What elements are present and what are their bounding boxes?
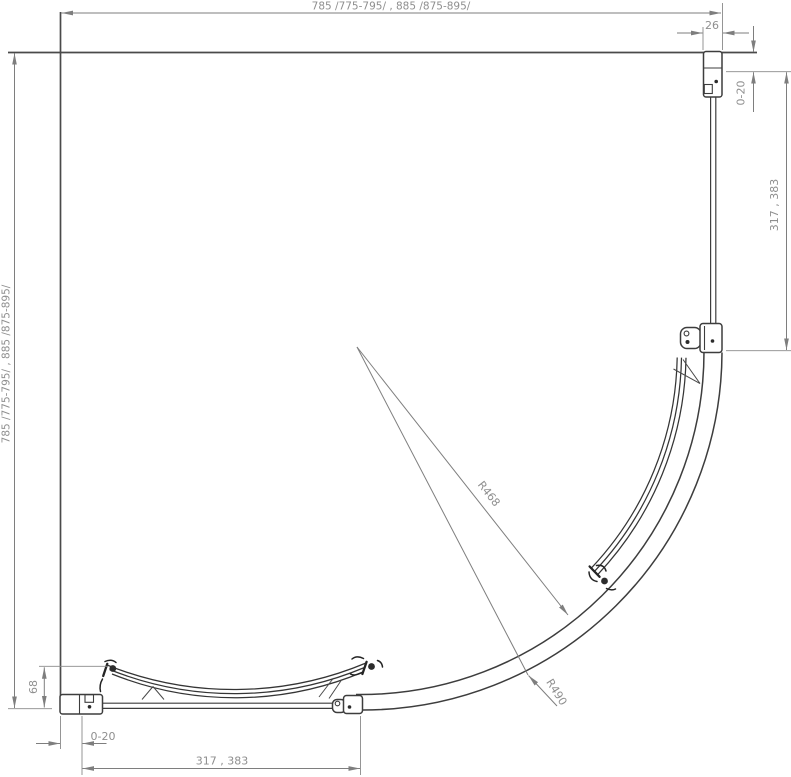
handle-tail — [378, 661, 383, 668]
handle-knob — [601, 578, 608, 585]
bracket-screw — [348, 705, 352, 709]
wall-profile-notch — [704, 85, 712, 94]
bracket-clamp — [681, 328, 702, 349]
technical-drawing-page: R468 R490 — [0, 0, 791, 777]
right-panel-label: 317 , 383 — [768, 179, 781, 231]
dim-top-width: 785 /775-795/ , 885 /875-895/ — [62, 1, 723, 51]
right-door-strut2 — [674, 369, 701, 384]
bottom-corner-bracket — [333, 696, 363, 714]
bracket-body — [700, 324, 722, 353]
shower-enclosure-plan-drawing: R468 R490 — [0, 0, 791, 777]
door-end-cap — [103, 664, 107, 676]
handle-knob — [109, 665, 116, 672]
right-adjustment-label: 0-20 — [735, 81, 748, 106]
radius-inner-label: R468 — [475, 479, 503, 510]
dim-left-height: 785 /775-795/ , 885 /875-895/ — [1, 53, 53, 709]
radius-inner-leader-line — [357, 347, 568, 615]
bottom-sliding-door — [100, 657, 382, 700]
wall-profile-screw — [88, 705, 92, 709]
top-wall-profile — [704, 52, 723, 98]
bottom-panel-label: 317 , 383 — [196, 755, 248, 768]
radius-outer-label: R490 — [543, 677, 569, 708]
bottom-door-right-handle — [351, 657, 383, 675]
track-outer-arc — [362, 353, 722, 711]
wall-profile-body — [60, 695, 103, 715]
bracket-body — [344, 696, 363, 714]
dim-right-adjustment: 0-20 — [726, 26, 791, 112]
wall-profile-screw — [714, 80, 718, 84]
right-door-line3 — [592, 358, 678, 568]
bracket-screw — [711, 339, 715, 343]
dim-profile-width: 26 — [677, 19, 749, 50]
bottom-adjustment-label: 0-20 — [91, 730, 116, 743]
right-door-line1 — [598, 358, 686, 574]
bottom-door-left-handle — [100, 660, 116, 691]
dim-bottom-panel: 317 , 383 — [83, 716, 361, 775]
left-height-label: 785 /775-795/ , 885 /875-895/ — [1, 284, 13, 443]
handle-tail — [607, 589, 616, 590]
wall-clearance-label: 68 — [27, 680, 40, 694]
wall-profile-notch — [85, 695, 94, 703]
track-inner-arc — [356, 351, 704, 695]
handle-prong-top — [352, 657, 364, 659]
radius-leaders: R468 R490 — [357, 347, 570, 708]
wall-lines — [8, 12, 757, 713]
clamp-ring — [335, 701, 340, 706]
clamp-ring — [684, 331, 689, 336]
bottom-wall-profile — [60, 695, 103, 715]
right-sliding-door — [589, 358, 700, 590]
profile-width-label: 26 — [705, 19, 719, 32]
curved-track — [356, 351, 722, 710]
right-corner-bracket — [681, 324, 723, 353]
clamp-pin — [686, 340, 690, 344]
right-fixed-panel — [681, 52, 723, 353]
dim-bottom-adjustment: 0-20 — [36, 716, 115, 775]
top-width-label: 785 /775-795/ , 885 /875-895/ — [312, 1, 471, 13]
handle-prong-top — [105, 660, 116, 662]
dim-right-panel: 317 , 383 — [726, 72, 791, 351]
radius-outer-leader-line — [357, 347, 528, 675]
handle-knob — [368, 663, 375, 670]
bottom-door-roller1 — [142, 687, 153, 700]
handle-tail — [100, 679, 102, 692]
